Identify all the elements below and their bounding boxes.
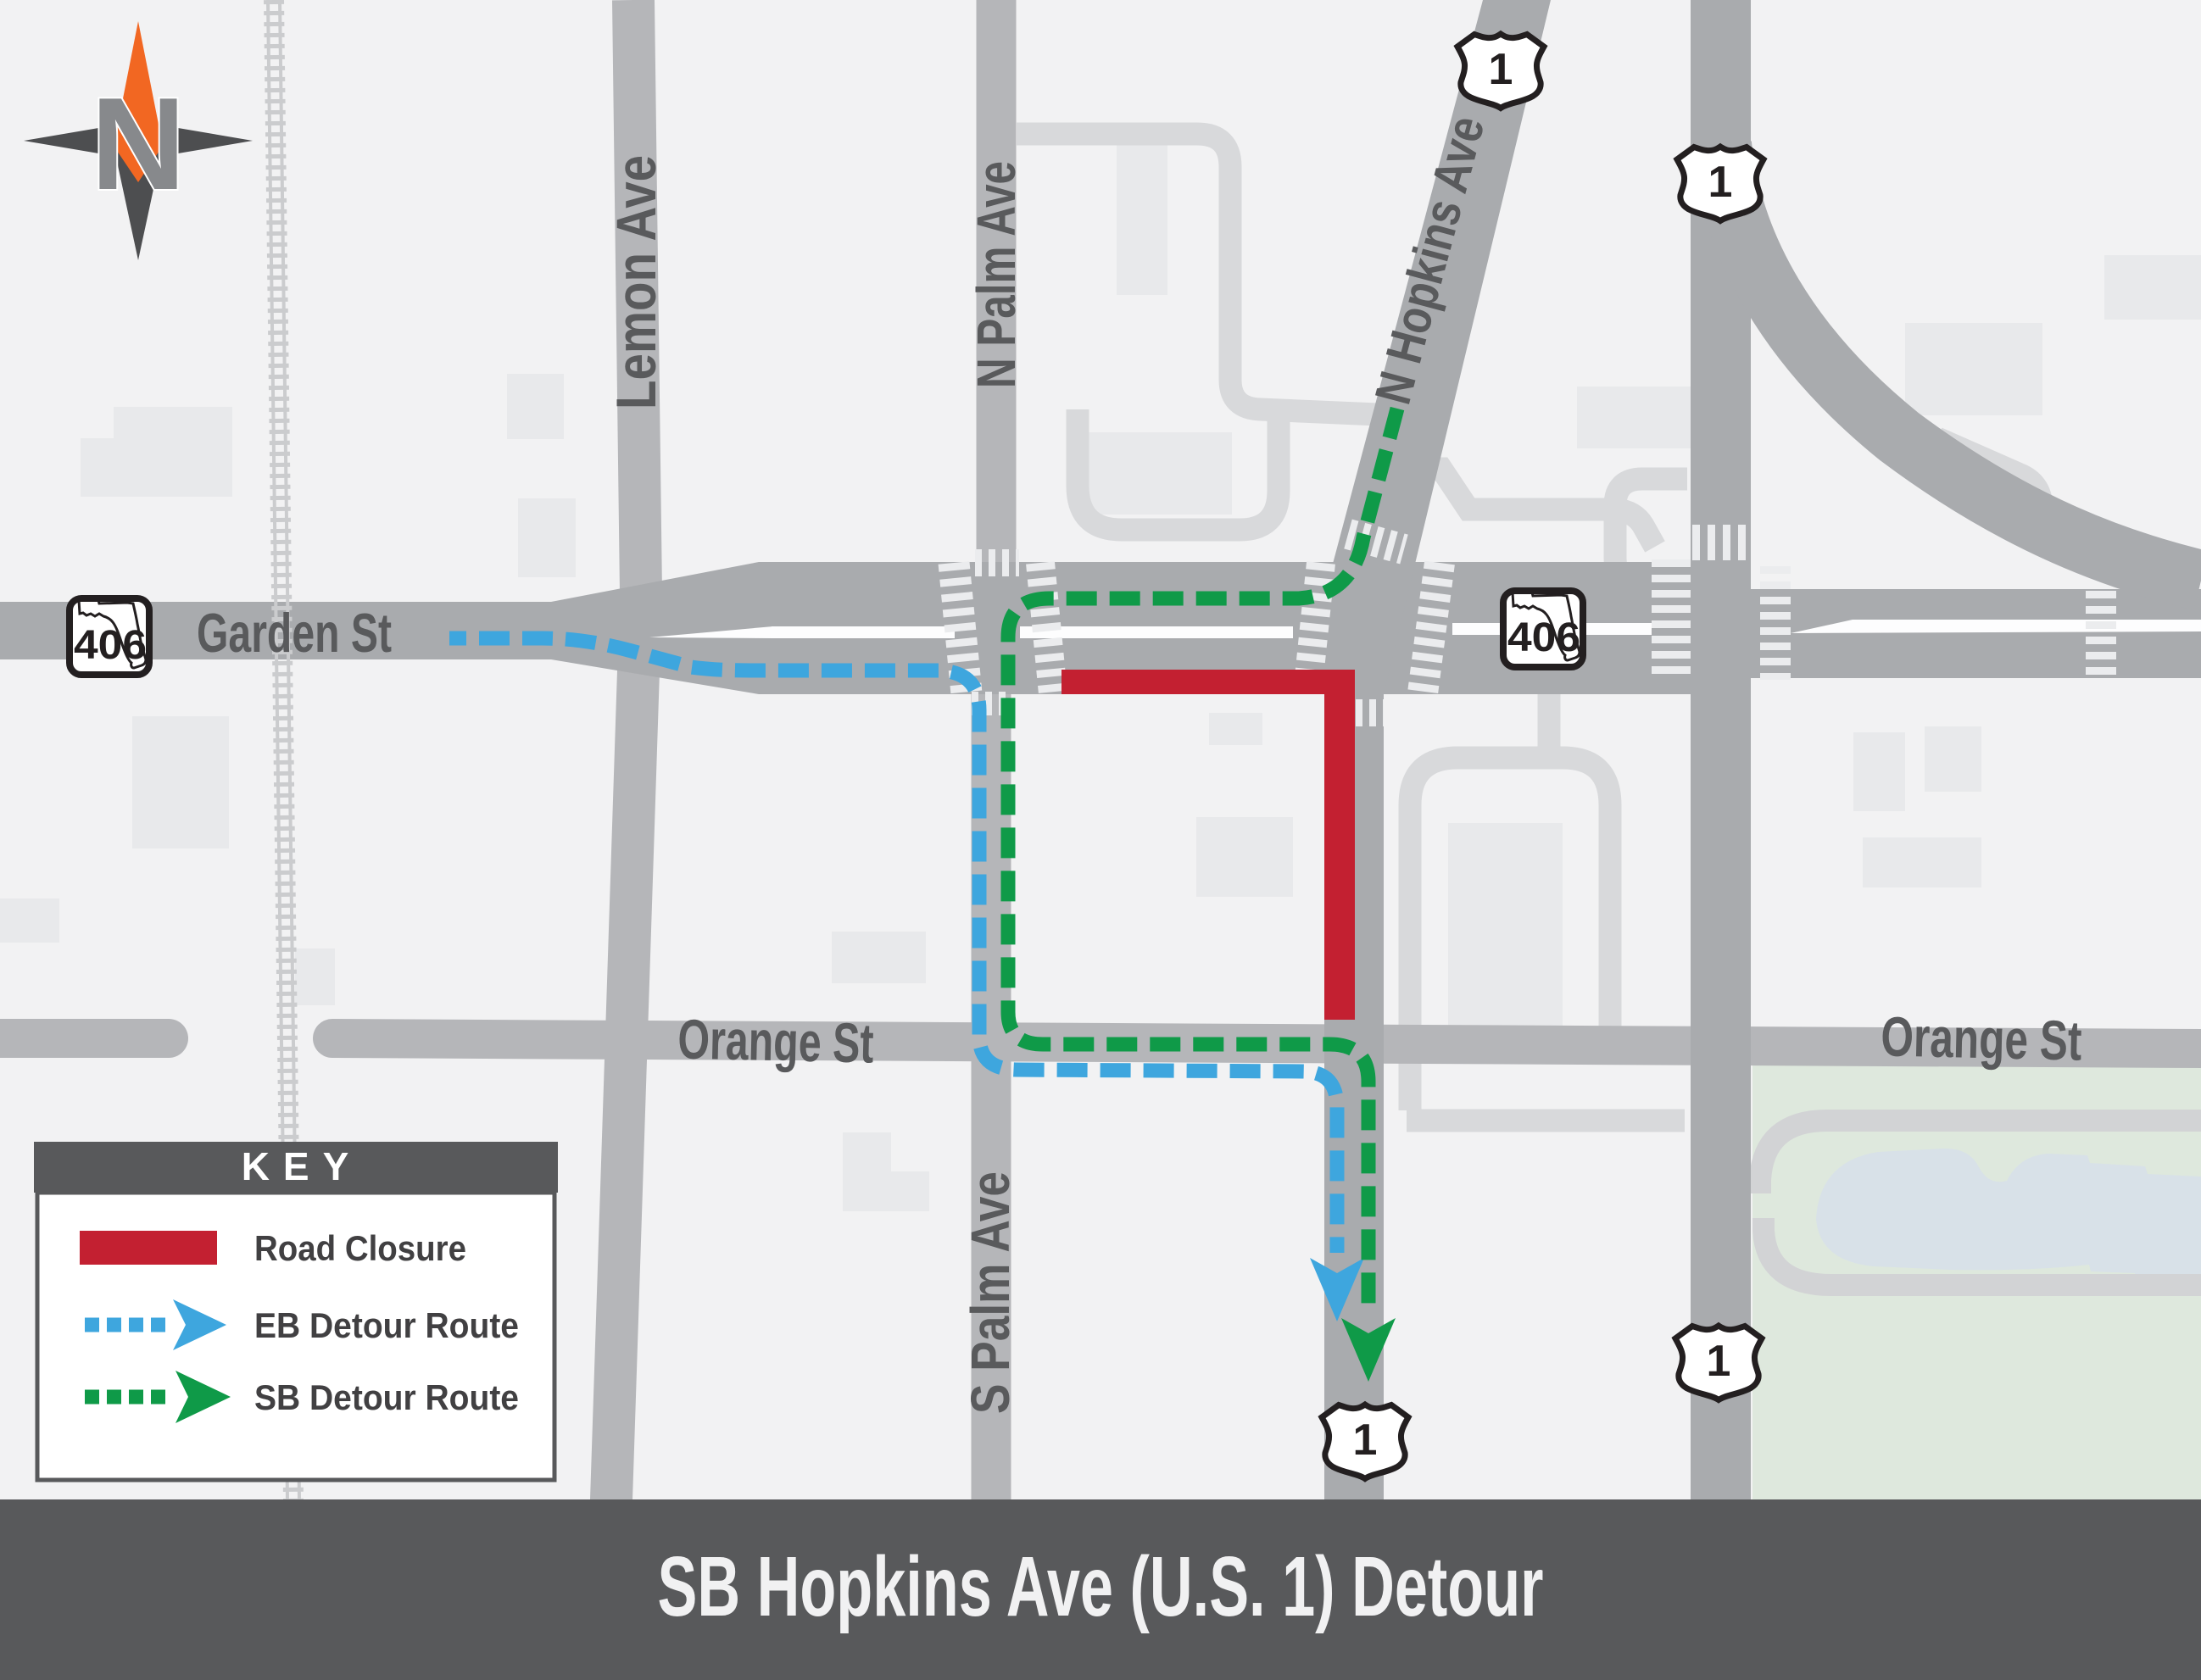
svg-text:SB Detour Route: SB Detour Route <box>254 1377 519 1417</box>
svg-text:EB Detour Route: EB Detour Route <box>254 1305 519 1345</box>
svg-text:Orange St: Orange St <box>1881 1004 2083 1071</box>
svg-text:Lemon Ave: Lemon Ave <box>605 155 667 409</box>
svg-text:N Palm Ave: N Palm Ave <box>966 161 1027 388</box>
svg-text:S Palm Ave: S Palm Ave <box>960 1171 1021 1414</box>
svg-text:Garden St: Garden St <box>197 602 392 664</box>
svg-text:Orange St: Orange St <box>677 1007 875 1074</box>
svg-text:SB Hopkins Ave (U.S. 1) Detour: SB Hopkins Ave (U.S. 1) Detour <box>658 1539 1544 1634</box>
svg-text:KEY: KEY <box>242 1144 363 1188</box>
svg-text:N: N <box>91 70 186 217</box>
svg-text:Road Closure: Road Closure <box>254 1228 466 1268</box>
